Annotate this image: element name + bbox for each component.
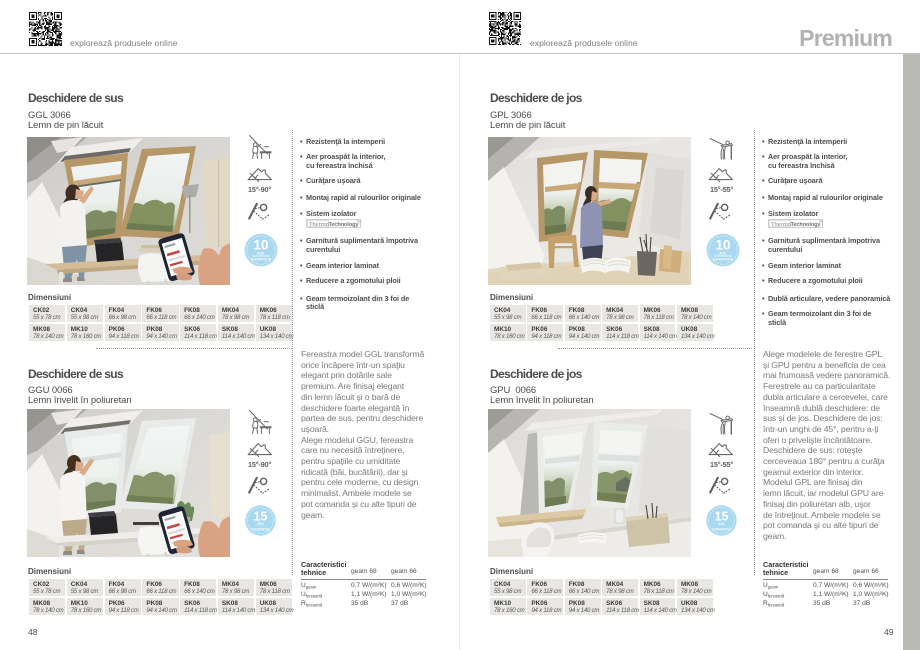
svg-text:ANI: ANI — [257, 251, 264, 255]
svg-text:GARANŢIE: GARANŢIE — [251, 527, 270, 531]
svg-text:TM: TM — [357, 220, 361, 224]
svg-text:GARANŢIE: GARANŢIE — [713, 258, 734, 262]
svg-text:Thermo: Thermo — [771, 222, 792, 228]
svg-text:ANI: ANI — [718, 522, 725, 526]
svg-text:10: 10 — [715, 237, 730, 252]
svg-text:Thermo: Thermo — [309, 222, 330, 228]
svg-text:10: 10 — [253, 237, 268, 252]
svg-text:Technology: Technology — [329, 222, 360, 228]
svg-text:GARANŢIE: GARANŢIE — [712, 527, 731, 531]
svg-text:GARANŢIE: GARANŢIE — [251, 258, 272, 262]
svg-text:ANI: ANI — [257, 522, 264, 526]
svg-text:Technology: Technology — [791, 222, 822, 228]
svg-text:TM: TM — [819, 220, 823, 224]
svg-text:ANI: ANI — [719, 251, 726, 255]
